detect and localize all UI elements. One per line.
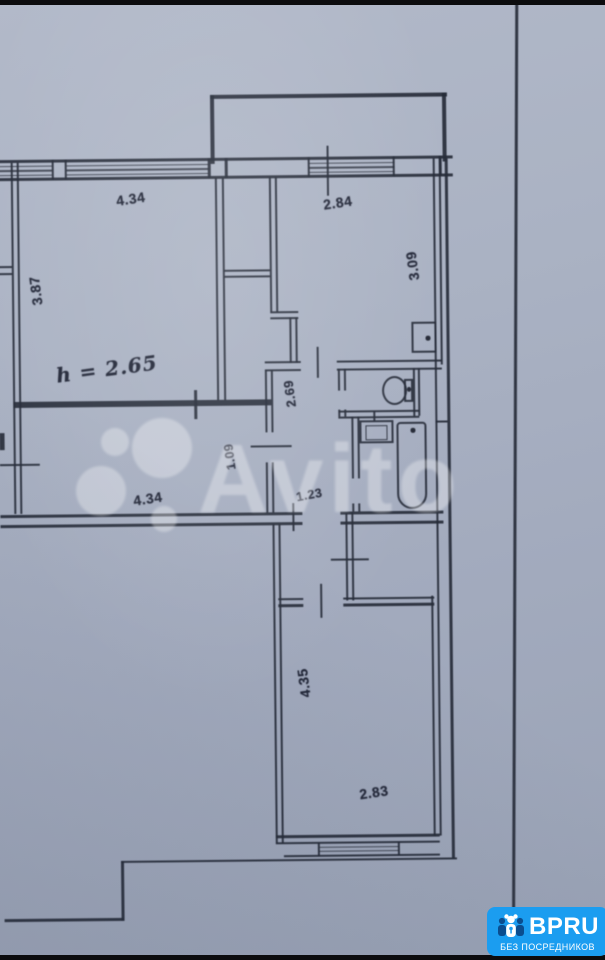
wall-pier: [318, 843, 320, 856]
window-hatch-line: [309, 162, 395, 164]
wall: [278, 604, 303, 607]
floorplan-photo: 4.34 2.84 3.87 3.09 h = 2.65 2.69 1.09 4…: [0, 0, 605, 960]
window-hatch-line: [67, 172, 209, 175]
exterior-wall: [5, 918, 124, 922]
exterior-wall: [121, 860, 124, 920]
wall: [343, 369, 345, 391]
window-hatch-line: [67, 163, 209, 166]
wall: [275, 177, 278, 312]
wall-pier: [398, 842, 400, 855]
letterbox-top: [0, 0, 605, 5]
window-hatch-line: [319, 846, 399, 848]
wall-pier: [225, 158, 228, 178]
door-tick: [320, 584, 322, 618]
window-hatch-line: [0, 174, 52, 176]
window-hatch-line: [0, 165, 52, 167]
wall: [272, 524, 277, 843]
window-hatch-line: [0, 170, 52, 172]
wall: [431, 596, 436, 836]
window-hatch-line: [309, 166, 395, 168]
kitchen-vent-box: [411, 322, 436, 353]
dimension-tick: [0, 464, 40, 466]
wall: [221, 178, 225, 400]
wall: [265, 361, 301, 363]
bpru-brand: BPRU: [529, 915, 599, 939]
wall-pier: [308, 157, 310, 177]
wall-pier: [393, 156, 395, 176]
wall: [338, 369, 340, 391]
balcony-wall: [210, 92, 447, 98]
wall: [11, 163, 17, 514]
bpru-tagline: БЕЗ ПОСРЕДНИКОВ: [500, 942, 595, 952]
wall: [337, 367, 442, 371]
dim-living-depth: 3.87: [26, 275, 46, 306]
window-hatch-line: [67, 168, 209, 171]
wall: [224, 275, 270, 277]
wall: [343, 603, 434, 606]
balcony-wall: [210, 95, 214, 164]
dim-kitchen-width: 2.84: [322, 193, 353, 213]
bpru-badge: BPRU БЕЗ ПОСРЕДНИКОВ: [487, 907, 605, 956]
dim-ceiling-height: h = 2.65: [55, 350, 159, 387]
wall-pier: [52, 160, 54, 180]
wall: [224, 269, 270, 271]
wall: [276, 840, 440, 844]
wall-pier: [208, 158, 211, 178]
dim-bottom-room-depth: 4.35: [294, 667, 314, 698]
door-tick: [317, 347, 319, 378]
dim-living-width: 4.34: [115, 189, 146, 209]
window-hatch-line: [309, 171, 395, 173]
avito-watermark: Avito: [70, 405, 540, 555]
wall: [278, 598, 303, 600]
wall-stub: [0, 273, 12, 275]
watermark-brand-text: Avito: [198, 405, 538, 555]
wall: [16, 163, 22, 514]
exterior-wall: [121, 857, 457, 863]
dim-corridor-upper: 2.69: [281, 379, 299, 408]
wall: [269, 177, 272, 312]
balcony-wall: [442, 92, 446, 161]
wall: [270, 311, 298, 313]
fixture-dot: [407, 387, 411, 392]
window-hatch-line: [319, 850, 399, 852]
wall-stub: [0, 433, 5, 450]
wall: [343, 597, 434, 600]
wall: [270, 317, 298, 319]
fixture-dot: [425, 336, 430, 341]
wall: [276, 834, 440, 838]
bpru-people-icon: [496, 913, 526, 940]
wall: [337, 360, 442, 363]
dimension-tick: [327, 146, 330, 196]
wall: [215, 178, 219, 400]
wall: [289, 317, 291, 363]
door-tick: [331, 558, 369, 560]
wall: [295, 317, 297, 363]
dim-kitchen-depth: 3.09: [403, 250, 423, 281]
wall-stub: [0, 266, 12, 268]
wall: [278, 524, 283, 843]
dim-bottom-room-width: 2.83: [358, 782, 389, 802]
wall: [438, 159, 442, 365]
